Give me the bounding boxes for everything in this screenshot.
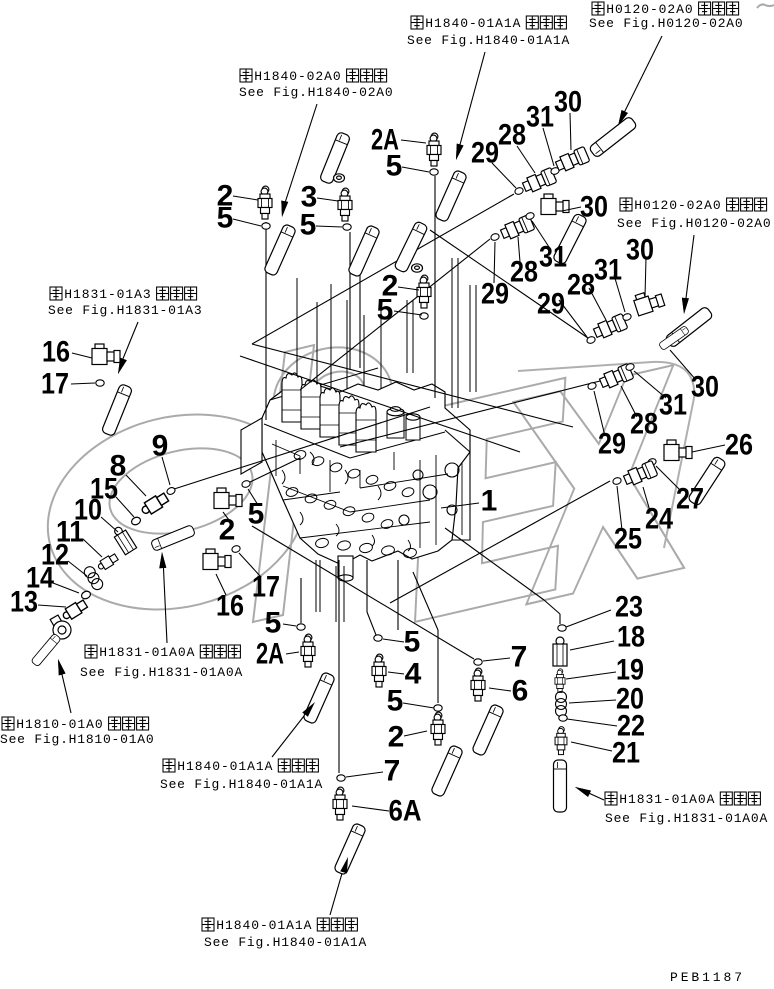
svg-text:23: 23 (615, 591, 643, 624)
svg-text:See Fig.H1831-01A0A: See Fig.H1831-01A0A (605, 811, 768, 826)
svg-text:1: 1 (481, 485, 498, 518)
svg-text:31: 31 (594, 254, 622, 287)
svg-text:H1840-01A1A: H1840-01A1A (177, 759, 273, 774)
svg-text:5: 5 (265, 607, 282, 640)
svg-text:See Fig.H0120-02A0: See Fig.H0120-02A0 (589, 16, 743, 31)
svg-text:17: 17 (41, 368, 69, 401)
svg-text:H1840-01A1A: H1840-01A1A (216, 918, 312, 933)
svg-text:See Fig.H1840-02A0: See Fig.H1840-02A0 (239, 85, 393, 100)
svg-text:H0120-02A0: H0120-02A0 (606, 2, 693, 17)
svg-text:25: 25 (614, 523, 642, 556)
svg-text:See Fig.H1840-01A1A: See Fig.H1840-01A1A (407, 33, 570, 48)
svg-text:H1840-01A1A: H1840-01A1A (425, 16, 521, 31)
svg-text:See Fig.H0120-02A0: See Fig.H0120-02A0 (617, 216, 771, 231)
svg-text:H1840-02A0: H1840-02A0 (254, 69, 341, 84)
svg-text:28: 28 (510, 256, 538, 289)
svg-text:29: 29 (481, 278, 509, 311)
svg-text:17: 17 (252, 571, 280, 604)
svg-text:H0120-02A0: H0120-02A0 (634, 198, 721, 213)
svg-text:5: 5 (300, 209, 317, 242)
svg-text:27: 27 (676, 483, 704, 516)
svg-text:H1831-01A3: H1831-01A3 (64, 287, 151, 302)
svg-text:7: 7 (384, 755, 401, 788)
svg-text:4: 4 (405, 658, 422, 691)
svg-text:5: 5 (387, 685, 404, 718)
svg-text:See Fig.H1840-01A1A: See Fig.H1840-01A1A (204, 935, 367, 950)
svg-text:6A: 6A (389, 795, 422, 828)
svg-text:31: 31 (659, 389, 687, 422)
svg-text:30: 30 (554, 86, 582, 119)
svg-text:See Fig.H1810-01A0: See Fig.H1810-01A0 (0, 732, 154, 747)
svg-text:See Fig.H1831-01A3: See Fig.H1831-01A3 (48, 303, 202, 318)
svg-text:13: 13 (10, 586, 38, 619)
svg-text:H1810-01A0: H1810-01A0 (16, 717, 103, 732)
svg-text:16: 16 (216, 590, 244, 623)
svg-text:5: 5 (404, 626, 421, 659)
svg-text:2: 2 (388, 721, 405, 754)
svg-text:29: 29 (598, 428, 626, 461)
svg-text:6: 6 (512, 675, 529, 708)
svg-text:18: 18 (617, 621, 645, 654)
svg-text:26: 26 (725, 429, 753, 462)
svg-text:H1831-01A0A: H1831-01A0A (99, 645, 195, 660)
svg-text:5: 5 (217, 202, 234, 235)
svg-text:See Fig.H1840-01A1A: See Fig.H1840-01A1A (160, 777, 323, 792)
svg-text:31: 31 (539, 241, 567, 274)
svg-text:30: 30 (691, 371, 719, 404)
svg-text:16: 16 (42, 336, 70, 369)
svg-text:30: 30 (626, 234, 654, 267)
svg-text:5: 5 (386, 150, 403, 183)
svg-text:PEB1187: PEB1187 (670, 970, 745, 984)
svg-text:See Fig.H1831-01A0A: See Fig.H1831-01A0A (80, 665, 243, 680)
svg-text:7: 7 (511, 641, 528, 674)
svg-text:31: 31 (526, 101, 554, 134)
svg-text:H1831-01A0A: H1831-01A0A (619, 792, 715, 807)
svg-text:2A: 2A (256, 638, 284, 671)
svg-text:29: 29 (537, 288, 565, 321)
svg-text:30: 30 (580, 191, 608, 224)
svg-text:2: 2 (219, 514, 236, 547)
svg-text:21: 21 (612, 737, 640, 770)
svg-text:29: 29 (471, 137, 499, 170)
svg-text:28: 28 (567, 269, 595, 302)
svg-text:5: 5 (377, 294, 394, 327)
svg-text:9: 9 (152, 430, 169, 463)
svg-text:28: 28 (498, 119, 526, 152)
